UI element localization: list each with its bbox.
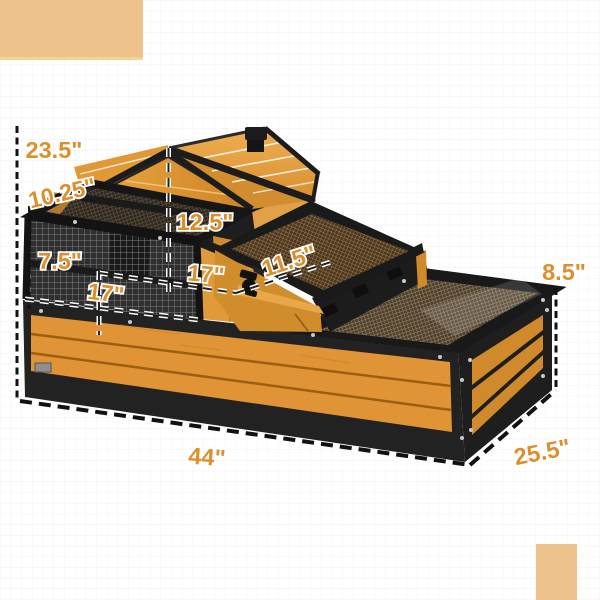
svg-text:12.5": 12.5" <box>177 209 234 235</box>
svg-text:44": 44" <box>187 443 226 472</box>
svg-text:17": 17" <box>86 278 125 308</box>
svg-text:23.5": 23.5" <box>26 137 83 163</box>
svg-text:8.5": 8.5" <box>542 259 586 285</box>
svg-text:17": 17" <box>187 259 226 288</box>
svg-text:7.5": 7.5" <box>38 248 82 274</box>
